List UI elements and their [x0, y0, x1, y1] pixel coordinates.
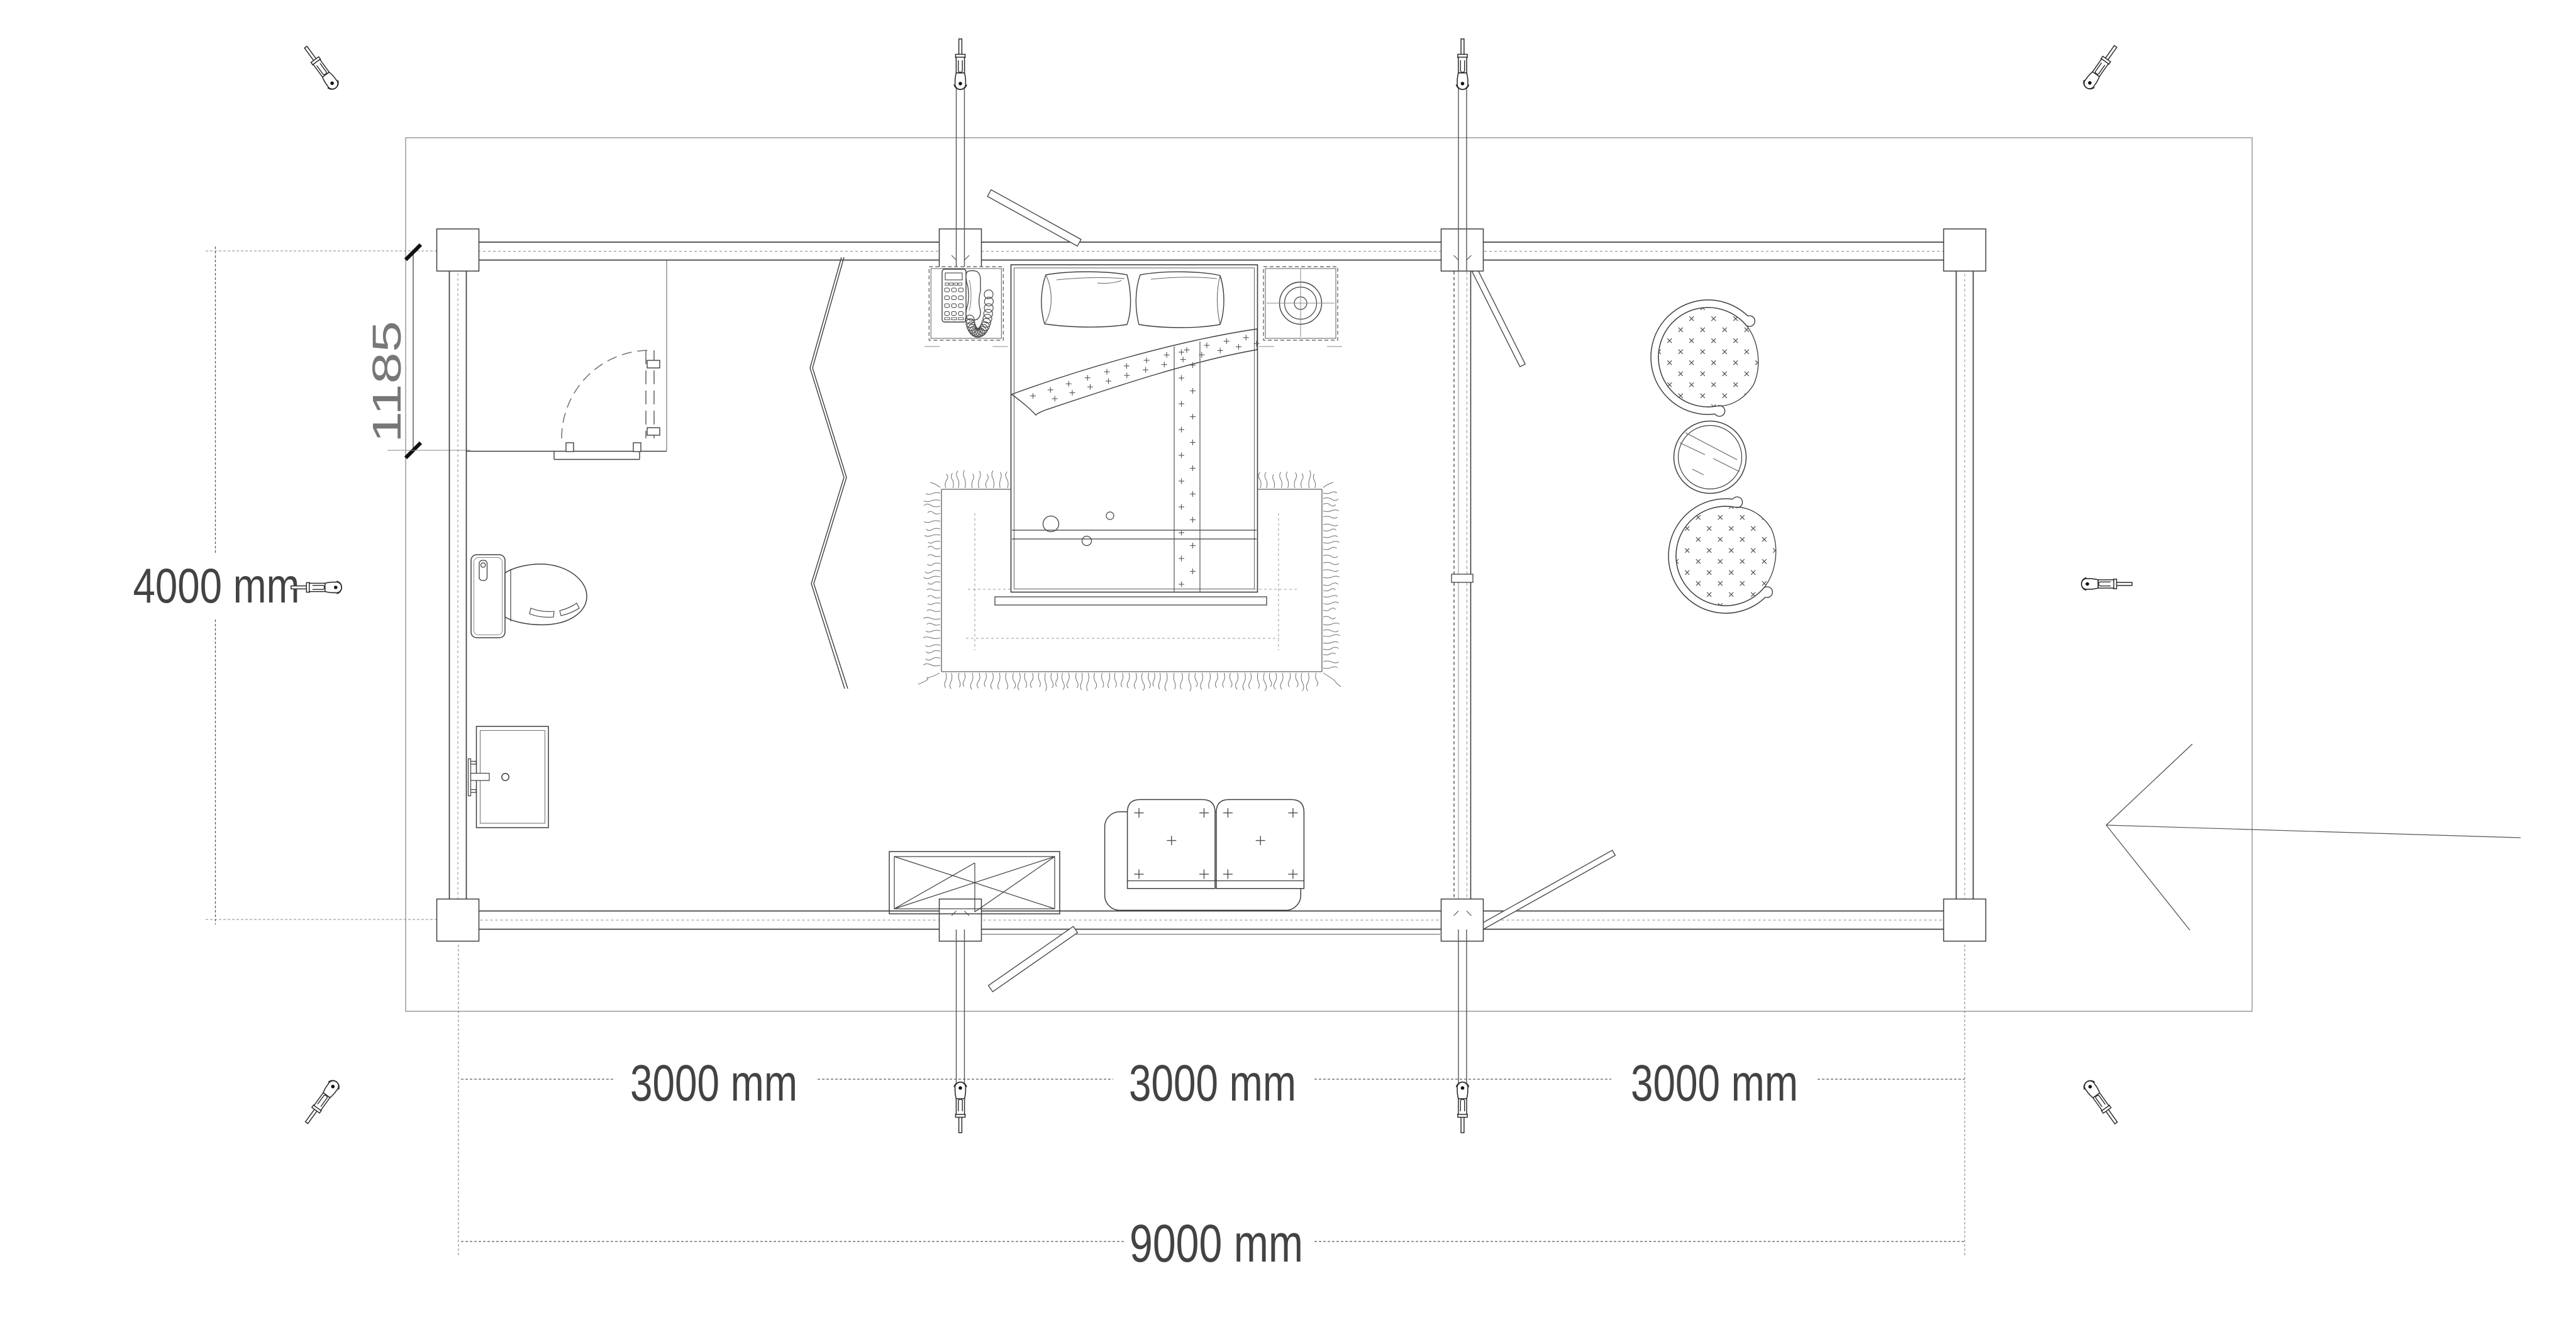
- svg-text:3000 mm: 3000 mm: [1631, 1055, 1798, 1112]
- svg-text:4000 mm: 4000 mm: [133, 558, 300, 613]
- svg-text:9000 mm: 9000 mm: [1130, 1214, 1303, 1273]
- svg-text:1185: 1185: [364, 321, 409, 443]
- svg-text:3000 mm: 3000 mm: [630, 1055, 797, 1112]
- svg-text:3000 mm: 3000 mm: [1129, 1055, 1296, 1112]
